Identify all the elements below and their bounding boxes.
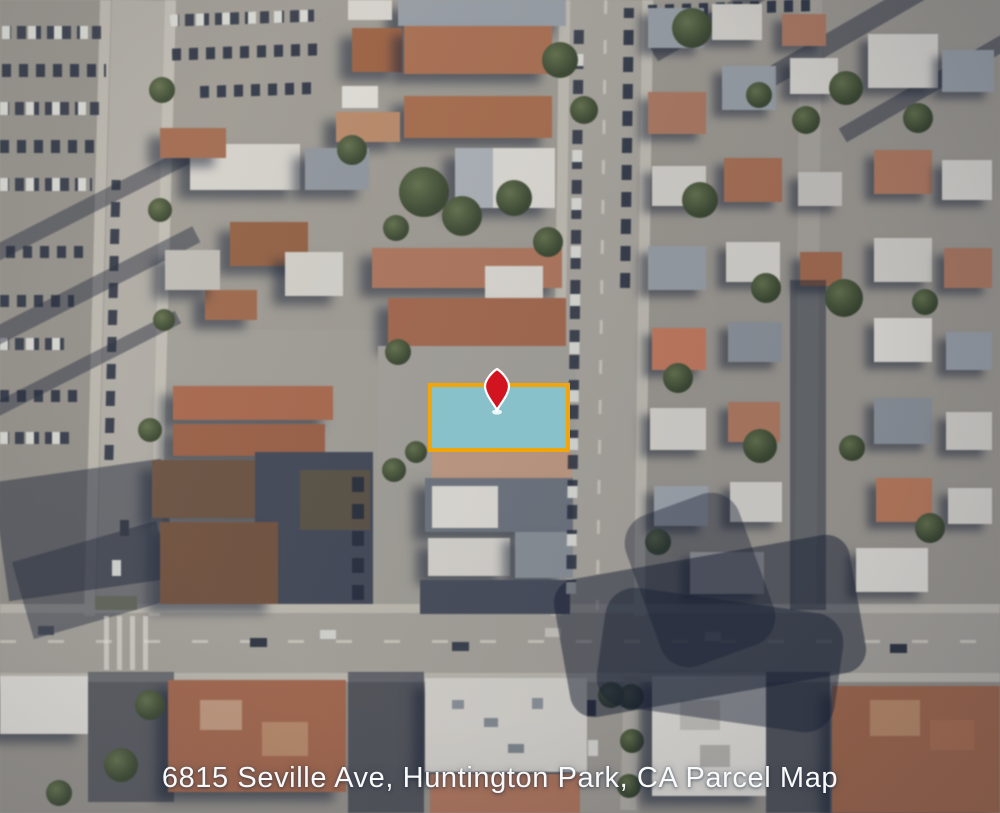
map-feature <box>874 238 932 282</box>
map-feature <box>385 339 411 365</box>
map-feature <box>149 77 175 103</box>
map-feature <box>428 538 510 576</box>
map-feature <box>148 198 172 222</box>
map-feature <box>382 458 406 482</box>
map-feature <box>205 290 257 320</box>
location-pin-icon[interactable] <box>480 367 514 415</box>
map-feature <box>2 64 106 77</box>
map-feature <box>542 42 578 78</box>
map-feature <box>432 486 498 528</box>
map-feature <box>0 432 72 444</box>
map-feature <box>425 678 587 772</box>
map-feature <box>399 167 449 217</box>
pin-kite-shape <box>485 369 509 410</box>
parcel-map-image[interactable]: 6815 Seville Ave, Huntington Park, CA Pa… <box>0 0 1000 813</box>
map-feature <box>712 4 762 40</box>
map-feature <box>825 279 863 317</box>
map-feature <box>383 215 409 241</box>
map-feature <box>250 638 267 647</box>
map-feature <box>672 8 712 48</box>
map-feature <box>912 289 938 315</box>
map-feature <box>0 102 100 115</box>
map-feature <box>262 722 308 756</box>
map-feature <box>484 718 498 727</box>
map-feature <box>946 412 992 450</box>
map-feature <box>930 720 974 750</box>
map-feature <box>442 196 482 236</box>
map-feature <box>452 700 464 709</box>
map-feature <box>751 273 781 303</box>
map-feature <box>515 532 573 578</box>
map-feature <box>942 160 992 200</box>
map-feature <box>405 441 427 463</box>
map-feature <box>792 106 820 134</box>
map-feature <box>135 690 165 720</box>
map-feature <box>342 86 378 108</box>
map-feature <box>508 744 524 753</box>
map-feature <box>942 50 994 92</box>
map-feature <box>944 248 992 288</box>
map-feature <box>120 520 129 536</box>
map-feature <box>650 408 706 450</box>
map-feature <box>903 103 933 133</box>
map-feature <box>352 28 402 72</box>
map-feature <box>620 729 644 753</box>
map-feature <box>432 452 572 478</box>
map-feature <box>682 182 718 218</box>
map-feature <box>153 309 175 331</box>
map-feature <box>173 386 333 420</box>
map-feature <box>839 435 865 461</box>
map-feature <box>570 96 598 124</box>
map-feature <box>388 298 566 346</box>
map-feature <box>348 0 392 20</box>
map-feature <box>728 322 782 362</box>
map-feature <box>648 92 706 134</box>
map-feature <box>420 580 570 614</box>
map-feature <box>868 34 938 88</box>
map-feature <box>890 644 907 653</box>
map-feature <box>165 250 220 290</box>
map-feature <box>0 178 92 191</box>
map-feature <box>533 227 563 257</box>
map-feature <box>915 513 945 543</box>
map-feature <box>856 548 928 592</box>
map-feature <box>874 318 932 362</box>
map-feature <box>870 700 920 736</box>
map-feature <box>829 71 863 105</box>
map-feature <box>337 135 367 165</box>
map-feature <box>38 626 54 635</box>
map-feature <box>452 642 469 651</box>
map-feature <box>724 158 782 202</box>
map-feature <box>948 488 992 524</box>
map-feature <box>200 700 242 730</box>
map-feature <box>352 470 364 600</box>
map-feature <box>874 398 932 444</box>
map-feature <box>782 14 826 46</box>
map-feature <box>798 172 842 206</box>
map-feature <box>285 252 343 296</box>
map-feature <box>648 246 706 290</box>
map-feature <box>398 0 566 26</box>
map-feature <box>160 522 278 604</box>
map-feature <box>874 150 932 194</box>
map-feature <box>112 560 121 576</box>
map-feature <box>588 740 598 756</box>
map-feature <box>404 96 552 138</box>
map-feature <box>496 180 532 216</box>
map-feature <box>0 140 96 153</box>
map-feature <box>663 363 693 393</box>
map-feature <box>404 26 552 74</box>
map-feature <box>743 429 777 463</box>
map-feature <box>946 332 992 370</box>
map-feature <box>532 698 543 709</box>
map-feature <box>0 676 88 734</box>
map-feature <box>746 82 772 108</box>
map-feature <box>104 616 156 670</box>
map-feature <box>138 418 162 442</box>
map-caption: 6815 Seville Ave, Huntington Park, CA Pa… <box>0 762 1000 795</box>
map-feature <box>0 338 64 350</box>
map-feature <box>320 630 336 639</box>
map-feature <box>2 26 102 39</box>
map-feature <box>160 128 226 158</box>
